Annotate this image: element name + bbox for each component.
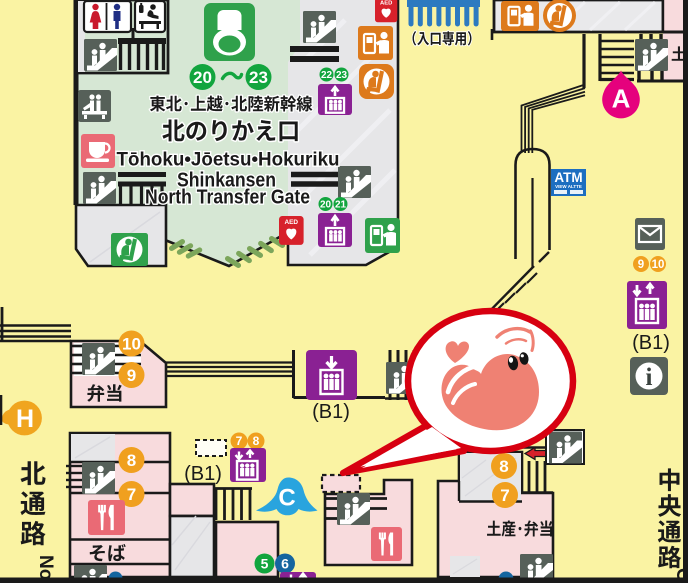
svg-text:7: 7	[127, 485, 136, 504]
svg-text:9: 9	[638, 259, 644, 271]
svg-text:23: 23	[336, 70, 348, 81]
svg-text:(B1): (B1)	[312, 401, 350, 423]
svg-text:10: 10	[652, 259, 665, 271]
svg-text:H: H	[16, 405, 34, 433]
svg-text:VIEW ALTTE: VIEW ALTTE	[555, 184, 582, 189]
svg-text:22: 22	[321, 70, 333, 81]
svg-text:8: 8	[127, 451, 136, 470]
svg-text:10: 10	[122, 335, 141, 354]
svg-text:9: 9	[127, 366, 136, 385]
svg-text:North Transfer Gate: North Transfer Gate	[145, 187, 310, 209]
svg-text:(B1): (B1)	[632, 332, 670, 354]
svg-text:6: 6	[281, 556, 289, 572]
svg-text:i: i	[646, 364, 653, 391]
svg-text:21: 21	[335, 200, 347, 211]
svg-text:C: C	[278, 485, 295, 512]
svg-text:5: 5	[261, 556, 269, 572]
svg-text:(B1): (B1)	[184, 463, 222, 485]
svg-text:7: 7	[500, 486, 509, 505]
svg-text:Tōhoku•Jōetsu•Hokuriku: Tōhoku•Jōetsu•Hokuriku	[117, 149, 340, 171]
svg-text:A: A	[612, 84, 631, 114]
svg-text:8: 8	[253, 434, 260, 448]
svg-text:20: 20	[193, 68, 212, 87]
svg-text:20: 20	[320, 200, 332, 211]
svg-text:ATM: ATM	[554, 170, 582, 185]
svg-text:7: 7	[236, 434, 243, 448]
svg-text:8: 8	[499, 457, 508, 476]
svg-text:23: 23	[249, 68, 268, 87]
